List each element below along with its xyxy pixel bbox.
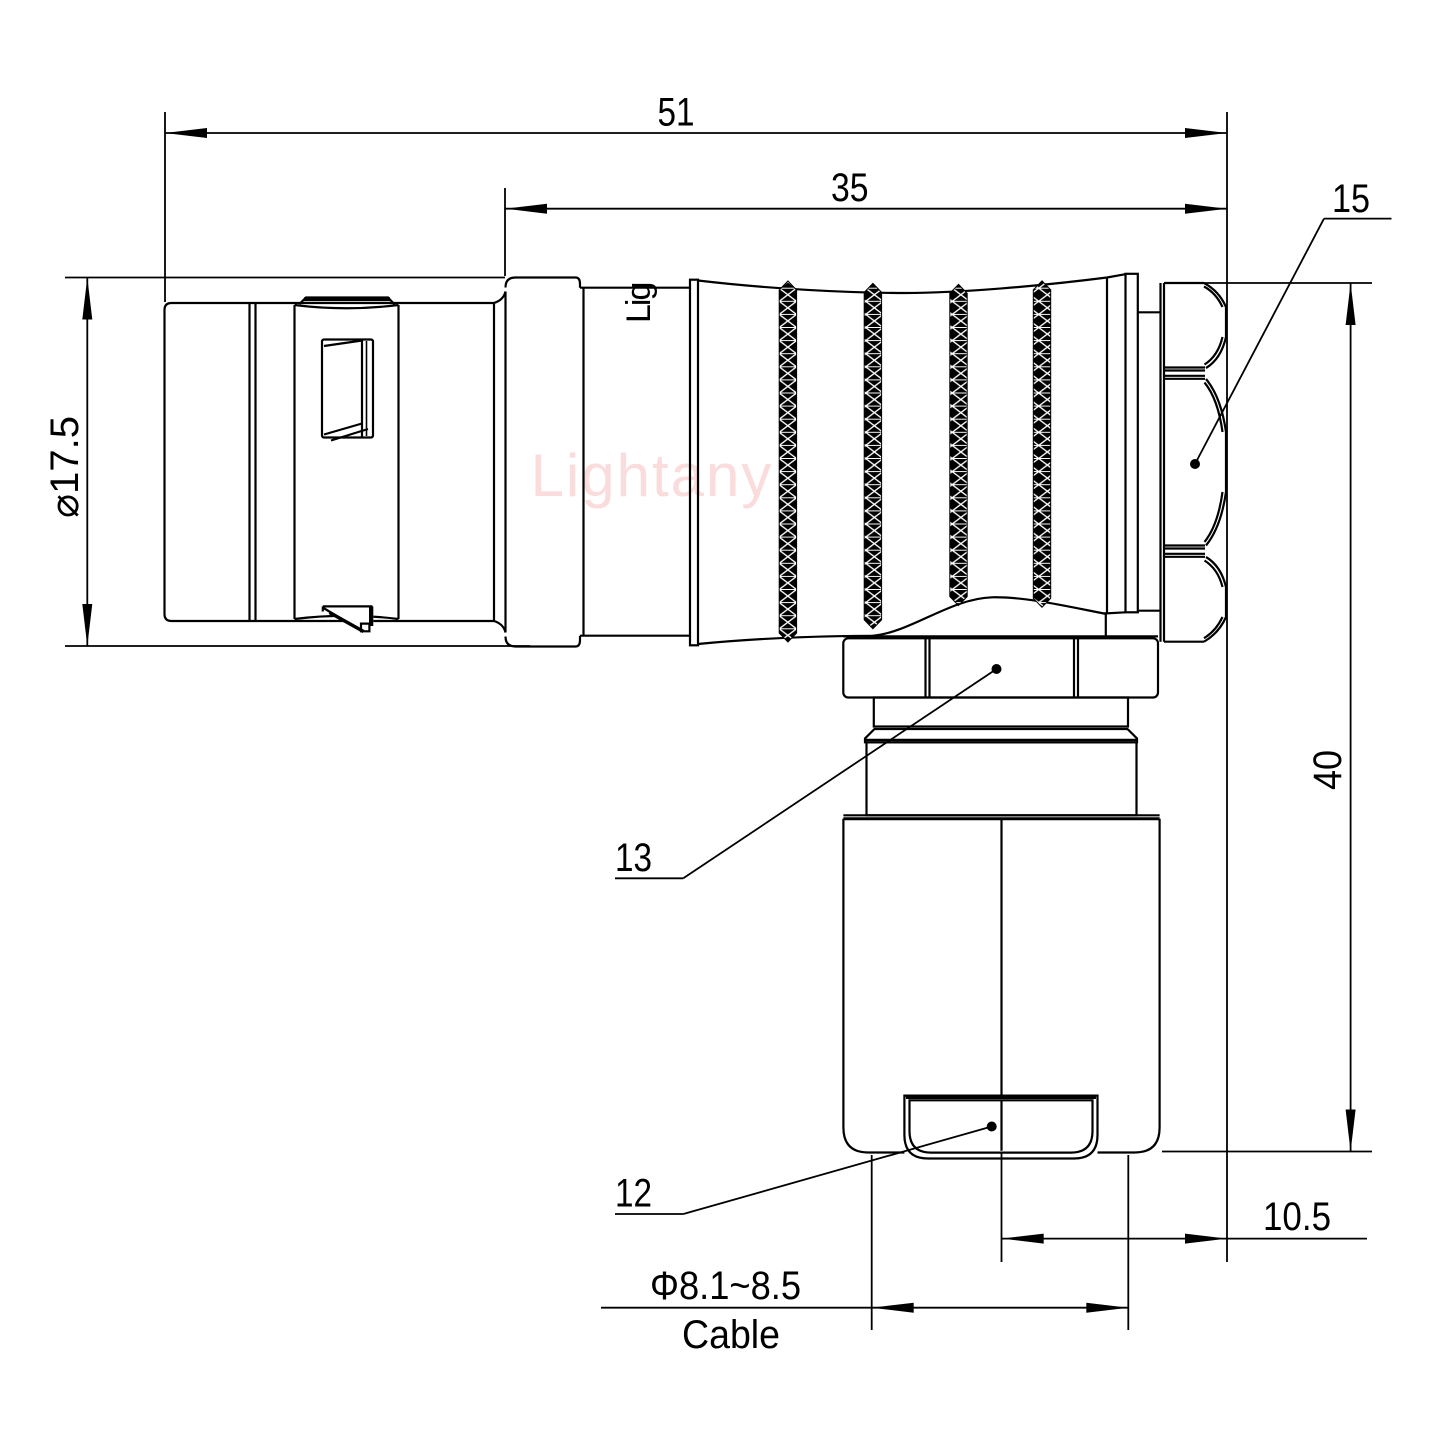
svg-text:⌀17.5: ⌀17.5: [43, 416, 87, 518]
svg-text:13: 13: [615, 836, 652, 880]
svg-text:Lightany: Lightany: [531, 442, 774, 509]
svg-text:Cable: Cable: [682, 1313, 780, 1357]
svg-text:35: 35: [831, 166, 869, 210]
svg-text:15: 15: [1332, 177, 1370, 221]
svg-text:10.5: 10.5: [1263, 1195, 1331, 1239]
svg-text:Φ8.1~8.5: Φ8.1~8.5: [650, 1264, 801, 1308]
svg-text:12: 12: [615, 1172, 652, 1216]
svg-text:51: 51: [658, 91, 695, 135]
svg-text:40: 40: [1306, 750, 1350, 790]
svg-text:Lig: Lig: [620, 284, 658, 323]
